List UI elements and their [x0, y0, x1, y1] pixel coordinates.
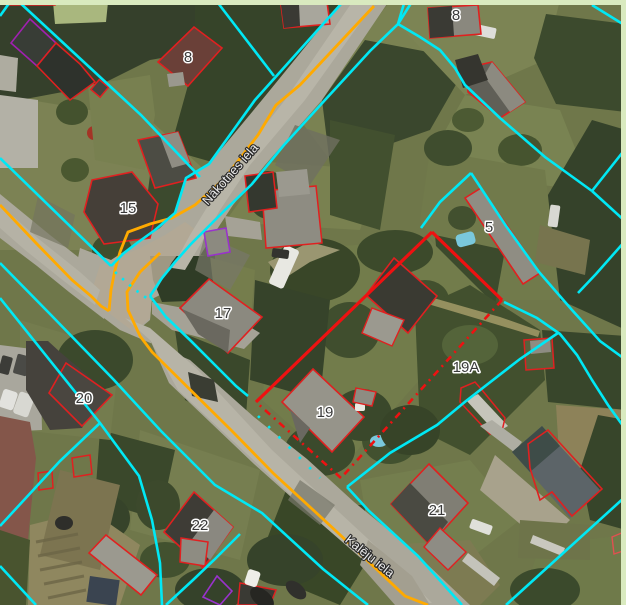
svg-text:19: 19	[317, 404, 334, 421]
svg-text:8: 8	[452, 7, 460, 24]
svg-text:17: 17	[215, 305, 232, 322]
svg-text:8: 8	[184, 49, 192, 66]
svg-text:22: 22	[192, 517, 209, 534]
svg-text:5: 5	[485, 219, 493, 236]
svg-text:19A: 19A	[453, 359, 480, 376]
svg-text:20: 20	[76, 390, 93, 407]
svg-text:15: 15	[120, 200, 137, 217]
svg-text:21: 21	[429, 502, 446, 519]
